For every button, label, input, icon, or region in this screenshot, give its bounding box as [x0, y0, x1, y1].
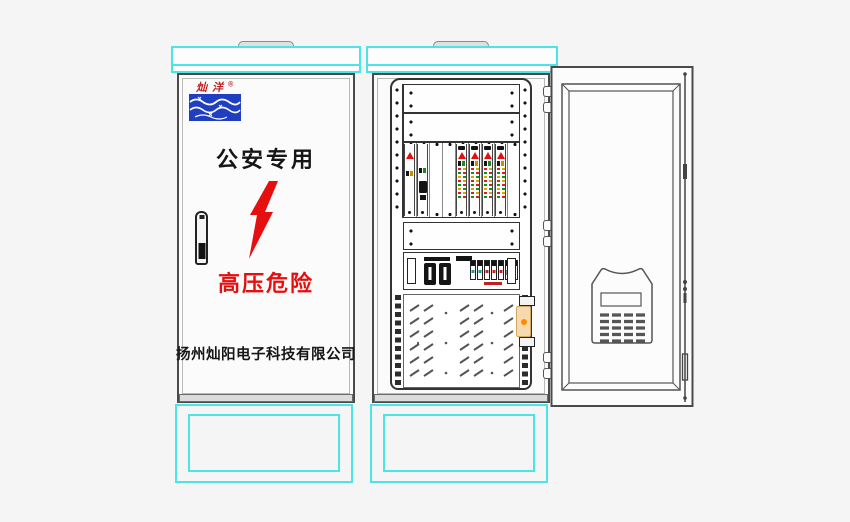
mounting-ear-left: [407, 258, 416, 284]
swing-handle-lock-icon: [195, 211, 208, 265]
mid-cabinet-plinth: [374, 394, 548, 402]
plugin-card-led-1: [456, 144, 467, 216]
orange-cable-clamp-icon: [516, 306, 531, 337]
led-column: [458, 168, 466, 198]
brand-text: 灿洋®: [196, 79, 233, 95]
front-label: 公安专用: [177, 142, 355, 174]
air-filter-housing-icon: [592, 269, 652, 343]
led-column: [484, 168, 492, 198]
display-window: [601, 293, 641, 306]
rack-rail-left: [392, 84, 403, 218]
power-distribution-panel: [403, 252, 520, 290]
open-door: [550, 64, 698, 410]
plugin-card-io: [417, 144, 428, 216]
led-column: [471, 168, 479, 198]
breaker-red-labels: [484, 282, 502, 285]
louver-vent-panel: [403, 294, 520, 388]
blank-panel-3: [403, 222, 520, 250]
registered-mark: ®: [228, 81, 233, 88]
left-cabinet-rain-cap: [171, 46, 361, 73]
brand-name: 灿洋: [196, 82, 228, 94]
plugin-card-led-4: [495, 144, 506, 216]
company-name-label: 扬州灿阳电子科技有限公司: [173, 343, 359, 364]
warning-triangle-icon: [471, 152, 479, 159]
warning-triangle-icon: [497, 152, 505, 159]
isolator-switch-icon: [439, 263, 451, 285]
blank-panel-2: [403, 113, 520, 142]
wave-logo-icon: [189, 94, 241, 121]
mounting-ear-right: [507, 258, 516, 284]
connector-block: [419, 181, 427, 193]
isolator-switch-icon: [424, 263, 436, 285]
plugin-card-led-2: [469, 144, 480, 216]
connector-block-small: [420, 195, 426, 200]
high-voltage-lightning-icon: [247, 181, 281, 261]
rack-rail-right: [519, 84, 530, 218]
warning-triangle-icon: [484, 152, 492, 159]
led-column: [497, 168, 505, 198]
cabinet-technical-drawing: 灿洋® 公安专用 高压危险 扬州灿阳电子科技有限公司: [0, 0, 850, 522]
warning-triangle-icon: [406, 152, 414, 159]
plugin-card-alarm: [404, 144, 415, 216]
warning-triangle-icon: [458, 152, 466, 159]
clamp-bracket-top: [519, 296, 535, 306]
vent-slashes: [404, 295, 519, 387]
rack-rail-left-holes: [394, 295, 402, 385]
mid-cabinet-base-inner: [383, 414, 535, 472]
plugin-card-led-3: [482, 144, 493, 216]
clamp-bracket-bottom: [519, 337, 535, 347]
mid-cabinet-rain-cap: [366, 46, 558, 73]
high-voltage-warning-label: 高压危险: [177, 266, 355, 298]
switch-bar: [424, 257, 450, 261]
blank-panel-1: [403, 84, 520, 113]
left-cabinet-plinth: [179, 394, 353, 402]
left-cabinet-base-inner: [188, 414, 340, 472]
